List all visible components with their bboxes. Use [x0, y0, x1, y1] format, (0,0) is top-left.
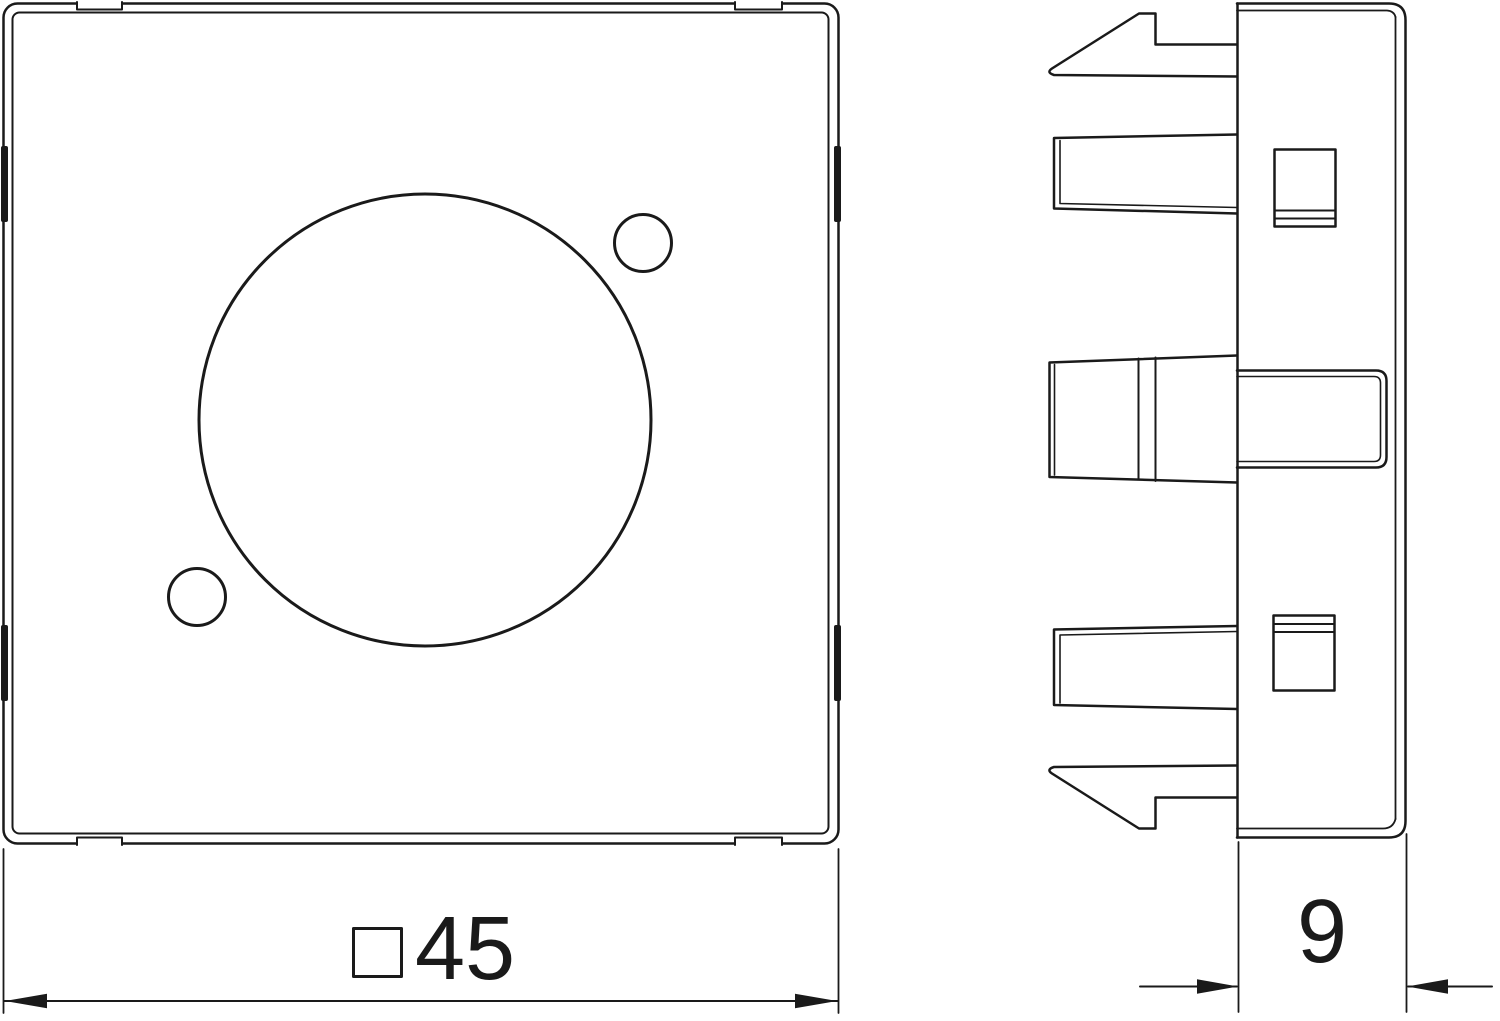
depth-arrow-right [1407, 979, 1448, 993]
screw-hole-top-right [615, 215, 672, 272]
front-plate-inner-face [13, 13, 829, 834]
edge-latch-band-right-bottom [834, 625, 841, 701]
face-protrusion-inner [1237, 377, 1381, 462]
edge-latch-band-left-top [1, 146, 8, 222]
center-support-block [1050, 356, 1238, 483]
dimension-depth: 9 [1140, 834, 1492, 1012]
screw-hole-bottom-left [169, 569, 226, 626]
width-arrow-right [795, 994, 837, 1008]
face-protrusion-outer [1237, 371, 1387, 468]
square-symbol [354, 929, 402, 977]
depth-arrow-left [1197, 979, 1238, 993]
edge-latch-band-right-top [834, 146, 841, 222]
latch-tab-upper-bevel [1060, 141, 1237, 208]
latch-tab-upper [1054, 135, 1237, 214]
connector-cutout-circle [199, 194, 651, 646]
width-arrow-left [5, 994, 47, 1008]
snap-hook-top [1049, 14, 1237, 77]
latch-window-top [1275, 150, 1336, 227]
side-view [1049, 4, 1405, 838]
depth-dimension-label: 9 [1297, 882, 1347, 982]
side-body-inner-top [1237, 11, 1396, 18]
latch-window-bottom [1274, 616, 1335, 691]
technical-drawing-page: 45 [0, 0, 1500, 1021]
width-dimension-label: 45 [415, 899, 515, 999]
snap-hook-bottom [1049, 766, 1237, 829]
latch-tab-lower [1054, 626, 1237, 709]
drawing-svg: 45 [0, 0, 1500, 1021]
side-body-inner-bottom [1237, 819, 1396, 829]
latch-tab-lower-bevel [1060, 632, 1237, 704]
dimension-width: 45 [4, 849, 839, 1013]
front-view [1, 0, 841, 847]
front-plate-outer-edge [4, 4, 839, 844]
edge-latch-band-left-bottom [1, 625, 8, 701]
